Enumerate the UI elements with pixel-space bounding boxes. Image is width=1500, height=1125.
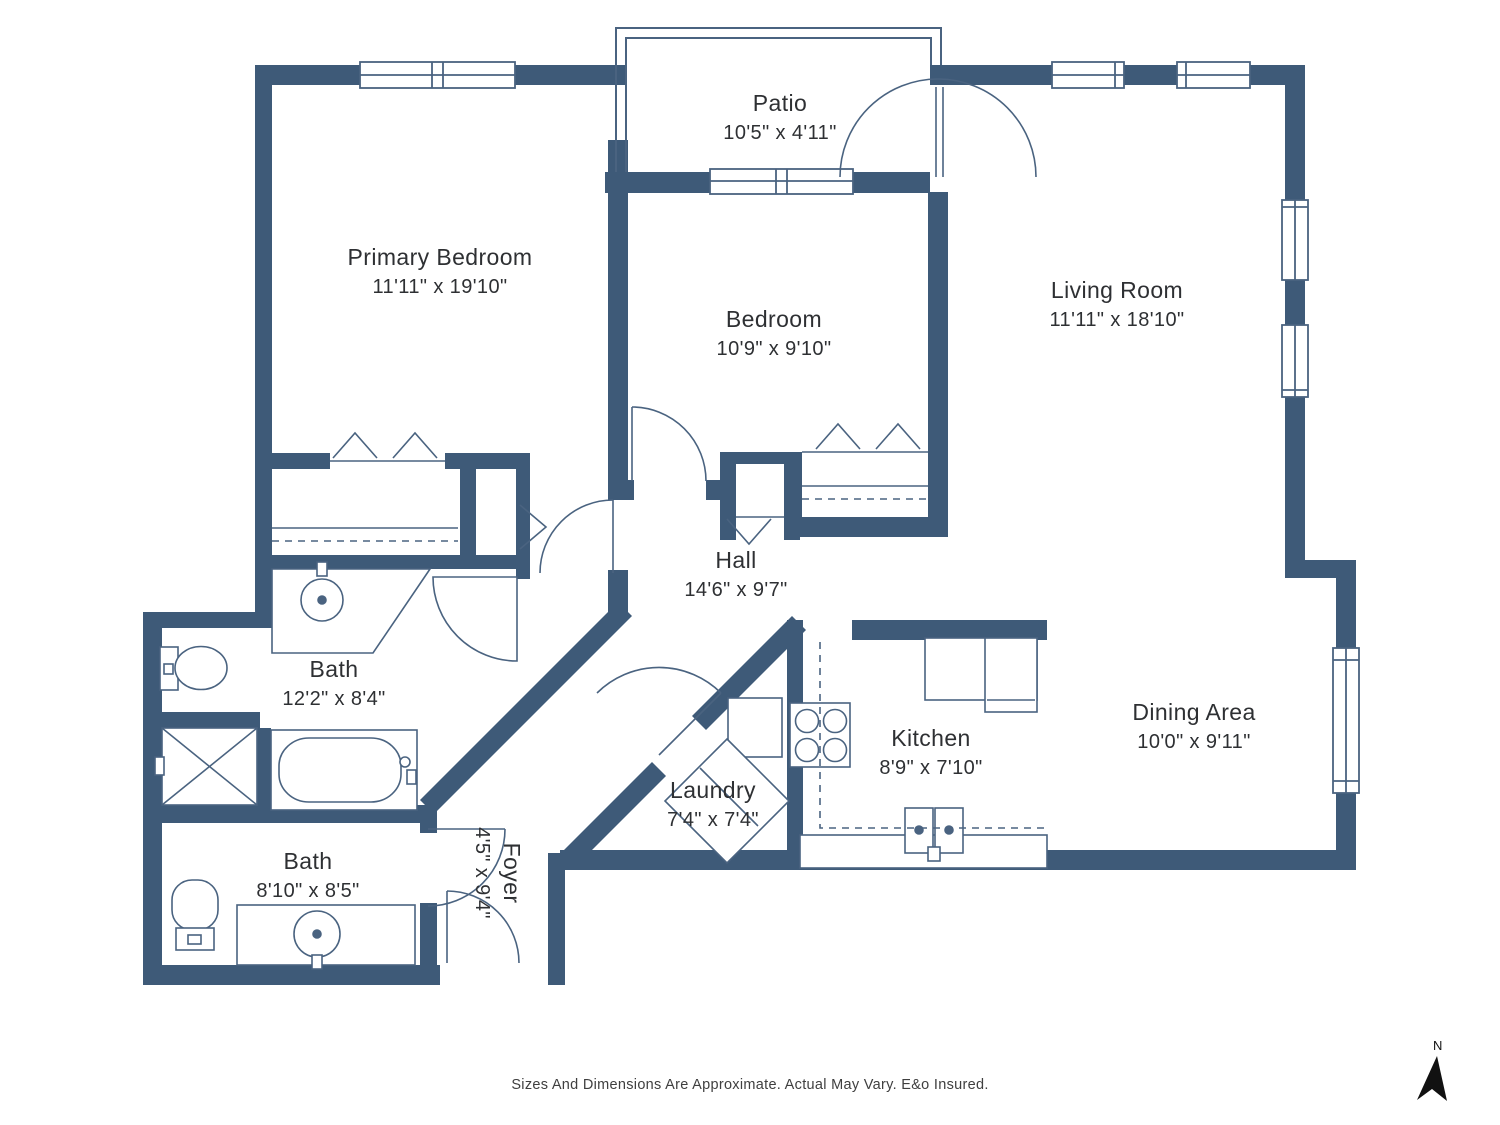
wall-pb-closet-top-b <box>445 453 520 469</box>
wall-bedroom-closet-bottom <box>790 517 948 537</box>
door-patio <box>840 79 1036 177</box>
wall-shower-top <box>160 712 260 728</box>
wall-lower-bath-right-b <box>420 903 437 965</box>
wall-bottom-left <box>143 965 440 985</box>
door-bath-upper <box>433 577 517 661</box>
door-bedroom <box>632 407 706 481</box>
sink2-drain <box>313 930 321 938</box>
bedroom-closet-chevron-1 <box>816 424 860 449</box>
sink2-faucet <box>312 955 322 969</box>
wall-primary-bedroom-left <box>255 65 272 628</box>
room-dims: 8'9" x 7'10" <box>879 753 982 783</box>
room-label-laundry: Laundry 7'4" x 7'4" <box>667 775 759 835</box>
room-label-dining-area: Dining Area 10'0" x 9'11" <box>1132 697 1255 757</box>
wall-bath-diagonal <box>420 602 632 814</box>
door-primary-bedroom <box>540 500 613 573</box>
wall-left-outer <box>143 612 162 985</box>
sink-faucet <box>317 562 327 576</box>
window-living-room-top-2 <box>1177 62 1250 88</box>
toilet2-bowl <box>172 880 218 930</box>
pb-closet-chevron-2 <box>393 433 437 458</box>
wall-hall-closet-top <box>720 452 800 464</box>
room-label-bath-upper: Bath 12'2" x 8'4" <box>282 654 385 714</box>
tub-faucet <box>400 757 410 767</box>
wall-living-room-right <box>1285 65 1305 577</box>
room-dims: 10'5" x 4'11" <box>723 118 836 148</box>
bathtub <box>271 730 417 810</box>
toilet2-button <box>188 935 201 944</box>
room-label-bedroom: Bedroom 10'9" x 9'10" <box>717 304 832 364</box>
disclaimer-text: Sizes And Dimensions Are Approximate. Ac… <box>0 1077 1500 1093</box>
window-dining <box>1333 648 1359 793</box>
room-dims: 7'4" x 7'4" <box>667 805 759 835</box>
room-name: Patio <box>753 88 807 118</box>
room-dims: 11'11" x 18'10" <box>1050 305 1185 335</box>
compass-north-label: N <box>1433 1038 1442 1053</box>
window-patio <box>710 169 853 194</box>
shower <box>155 728 257 805</box>
wall-closets-bottom <box>255 555 530 569</box>
toilet-bowl <box>175 647 227 690</box>
wall-bedroom-bottom-b <box>706 480 722 500</box>
window-living-room-right-2 <box>1282 325 1308 397</box>
room-name: Kitchen <box>891 723 971 753</box>
room-dims: 12'2" x 8'4" <box>282 684 385 714</box>
pb-closet-chevron-1 <box>333 433 377 458</box>
toilet-button <box>164 664 173 674</box>
room-label-patio: Patio 10'5" x 4'11" <box>723 88 836 148</box>
room-label-primary-bedroom: Primary Bedroom 11'11" x 19'10" <box>348 242 533 302</box>
room-name: Living Room <box>1051 275 1183 305</box>
room-name: Hall <box>715 545 756 575</box>
bedroom-closet-chevron-2 <box>876 424 920 449</box>
room-name: Bedroom <box>726 304 822 334</box>
wall-pb-closet-top-a <box>255 453 330 469</box>
room-name: Foyer <box>497 843 527 904</box>
sink-drain <box>318 596 326 604</box>
room-name: Bath <box>284 846 333 876</box>
wall-patio-bottom-b <box>853 172 930 193</box>
shower-valve <box>155 757 164 775</box>
wall-bedroom-right <box>928 192 948 520</box>
tub-control <box>407 770 416 784</box>
room-dims: 4'5" x 9'4" <box>467 827 497 919</box>
room-label-hall: Hall 14'6" x 9'7" <box>684 545 787 605</box>
window-living-room-right-1 <box>1282 200 1308 280</box>
wall-kitchen-top <box>852 620 1047 640</box>
room-label-bath-lower: Bath 8'10" x 8'5" <box>256 846 359 906</box>
room-dims: 10'0" x 9'11" <box>1137 727 1250 757</box>
room-name: Primary Bedroom <box>348 242 533 272</box>
wall-foyer-right <box>548 853 565 985</box>
wall-bedroom-left <box>608 192 628 500</box>
room-dims: 8'10" x 8'5" <box>256 876 359 906</box>
wall-bedroom-bottom-a <box>628 480 634 500</box>
window-living-room-top-1 <box>1052 62 1124 88</box>
wall-closet-divider <box>460 453 476 569</box>
wall-patio-bottom-a <box>605 172 710 193</box>
room-dims: 14'6" x 9'7" <box>684 575 787 605</box>
wall-shower-tub-divider <box>257 728 271 805</box>
room-name: Bath <box>310 654 359 684</box>
room-name: Laundry <box>670 775 756 805</box>
room-label-kitchen: Kitchen 8'9" x 7'10" <box>879 723 982 783</box>
window-primary-bedroom <box>360 62 515 88</box>
room-name: Dining Area <box>1132 697 1255 727</box>
floor-plan-canvas: Patio 10'5" x 4'11" Primary Bedroom 11'1… <box>0 0 1500 1125</box>
room-label-foyer: Foyer 4'5" x 9'4" <box>467 827 527 919</box>
vanity-counter <box>272 569 430 653</box>
windows <box>360 62 1359 793</box>
door-laundry <box>597 667 721 755</box>
fridge <box>985 638 1037 712</box>
room-dims: 11'11" x 19'10" <box>373 272 508 302</box>
room-label-living-room: Living Room 11'11" x 18'10" <box>1050 275 1185 335</box>
room-dims: 10'9" x 9'10" <box>717 334 832 364</box>
